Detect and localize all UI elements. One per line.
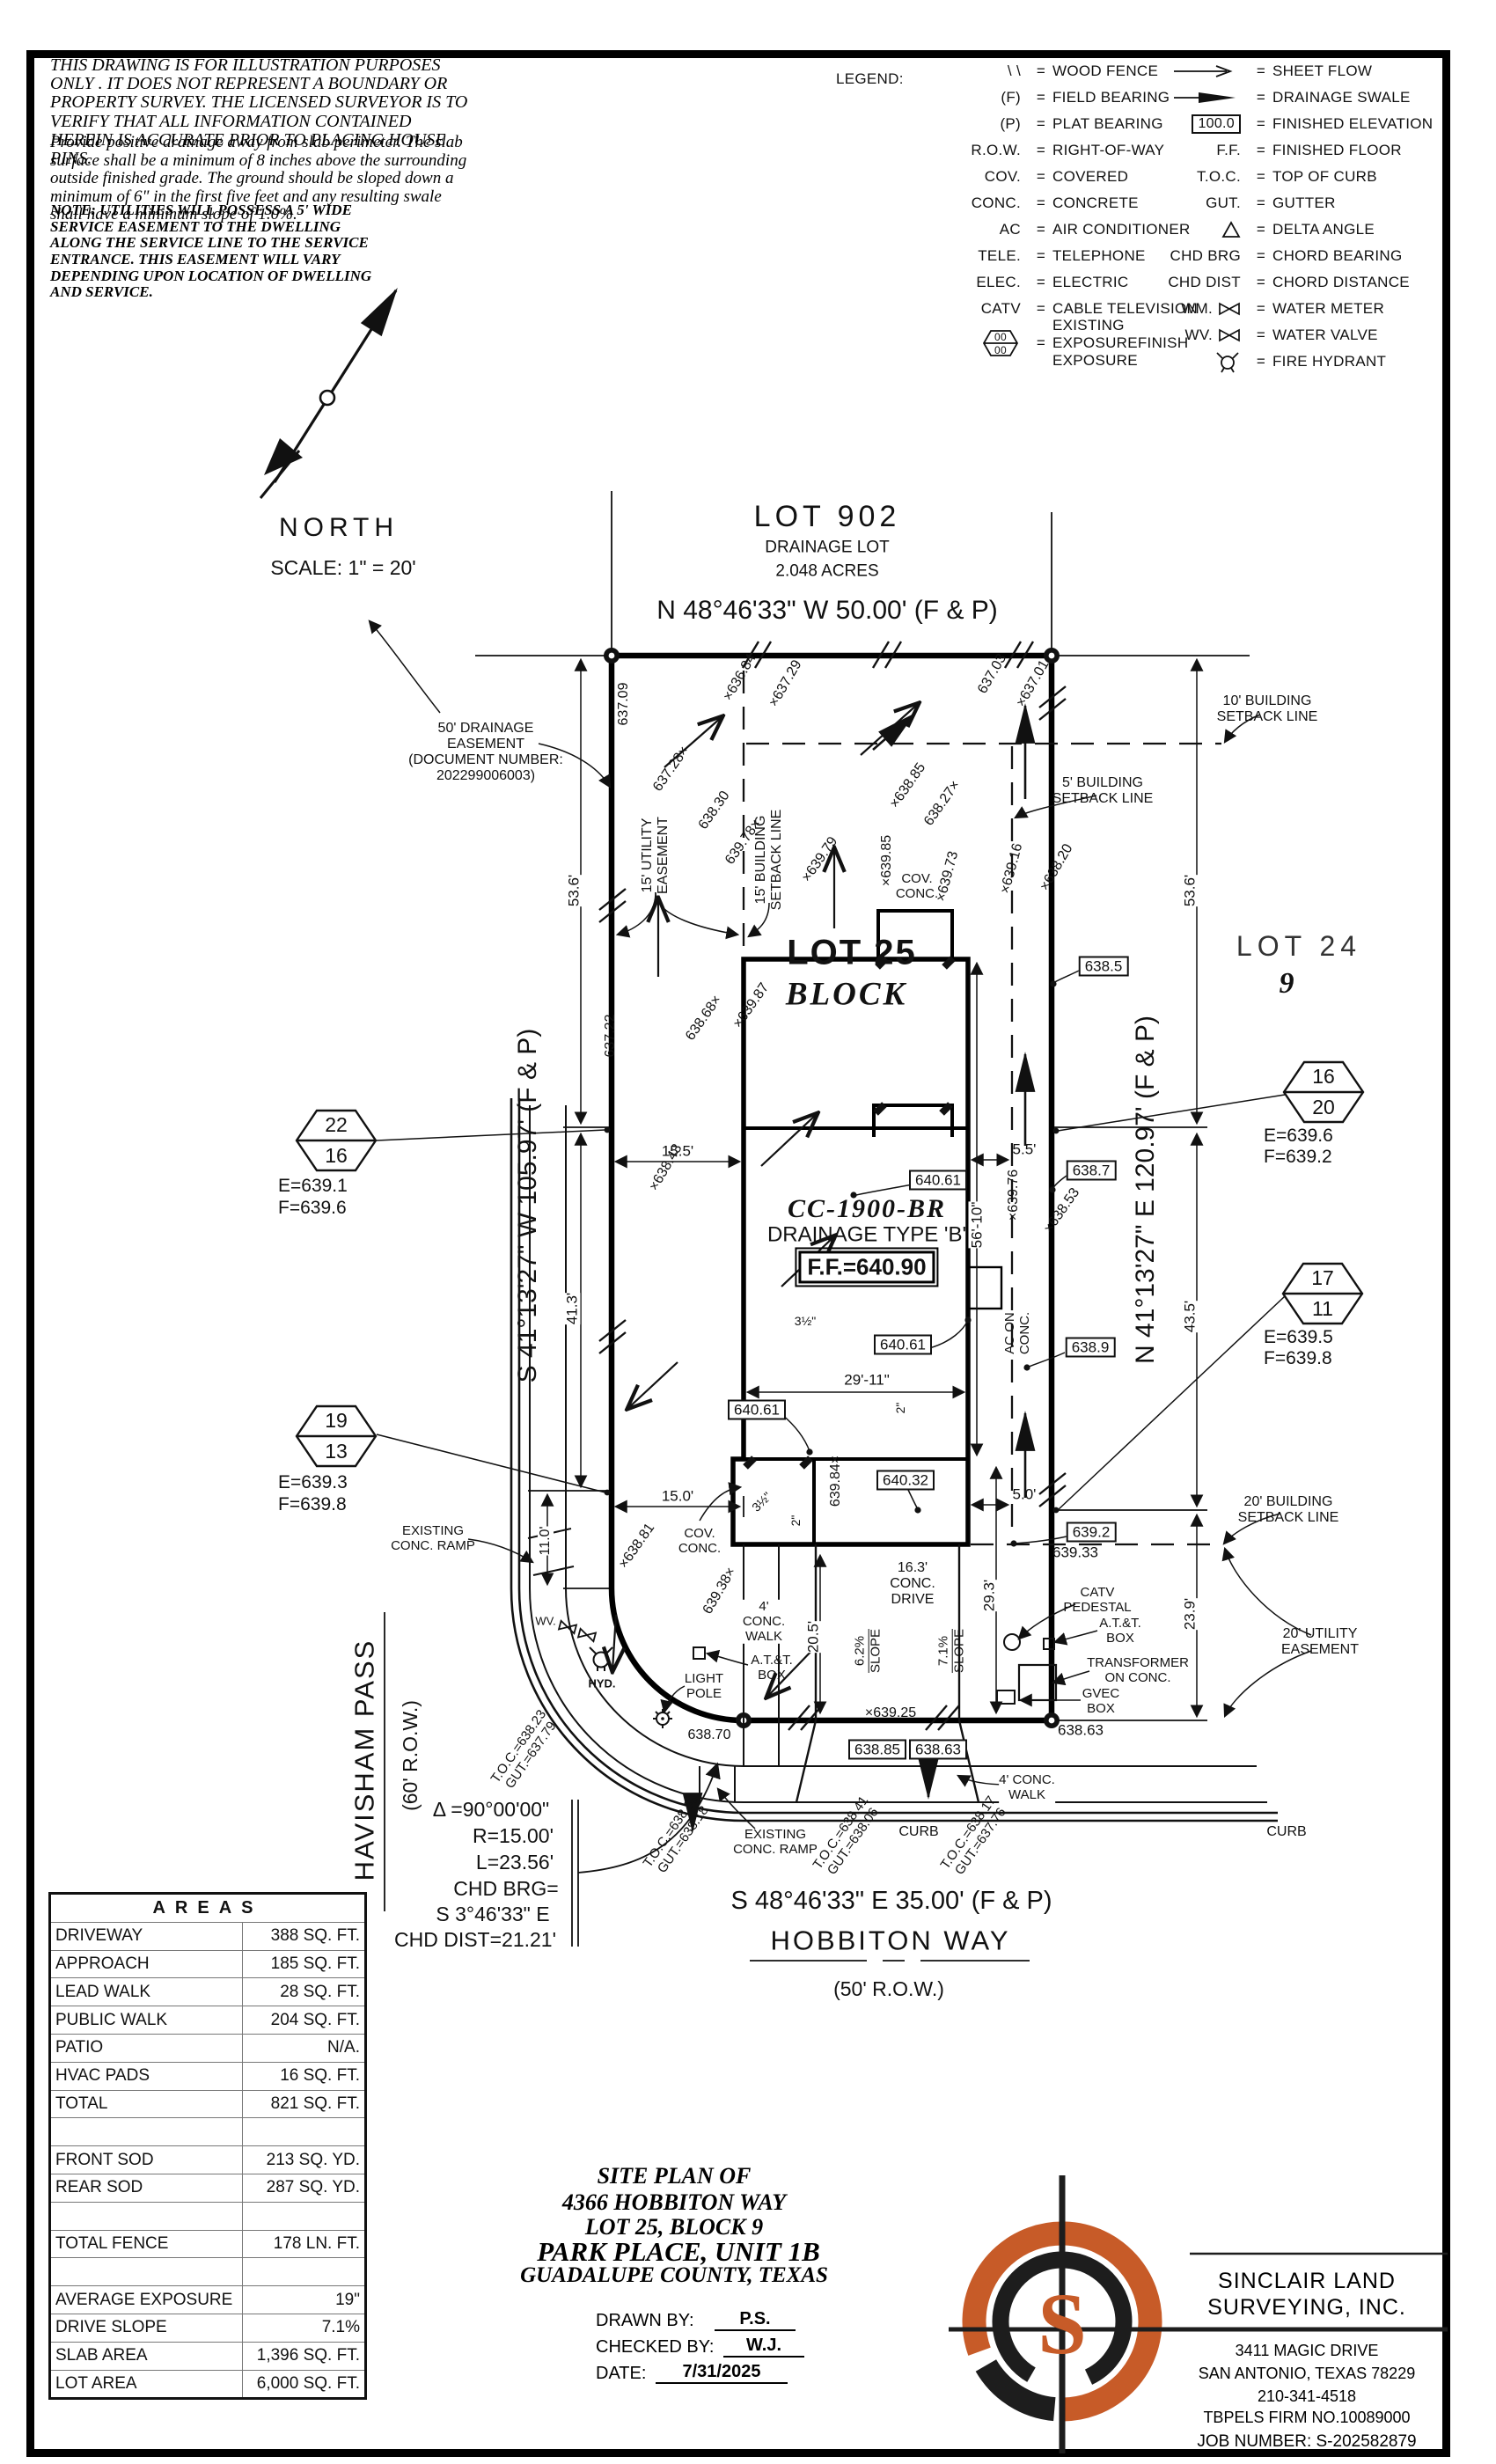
walkr-line1: 4' CONC. [999,1773,1055,1788]
water-valve-icon [559,1621,576,1633]
ue20-line2: EASEMENT [1281,1642,1359,1658]
hex4-existing: E=639.5 [1264,1327,1333,1348]
row-value [243,2202,366,2230]
ue15-line2: EASEMENT [656,817,671,894]
hex-bottom-value: 00 [994,344,1007,356]
hex4-top: 17 [1311,1267,1334,1290]
table-row: TOTAL FENCE178 LN. FT. [50,2230,366,2258]
elevation-638-63: 638.63 [1058,1721,1104,1738]
bsl5-line1: 5' BUILDING [1052,775,1154,791]
drainage-swale-arrow-icon [1118,92,1250,104]
catv-line1: CATV [1063,1586,1131,1601]
site-plan-sheet: THIS DRAWING IS FOR ILLUSTRATION PURPOSE… [0,0,1496,2464]
row-label: APPROACH [50,1950,243,1978]
curb-label-1: CURB [898,1824,938,1840]
row-value: 178 LN. FT. [243,2230,366,2258]
table-row [50,2202,366,2230]
company-firm-number: TBPELS FIRM NO.10089000 [1170,2409,1443,2427]
havisham-pass-street: HAVISHAM PASS [350,1639,381,1881]
legend-label: GUTTER [1272,194,1461,212]
hex3-top: 16 [1312,1066,1335,1089]
legend-row: T.O.C.=TOP OF CURB [1118,164,1461,190]
dim-53-6-east: 53.6' [1181,875,1198,906]
elevation-640-61-b: 640.61 [874,1334,932,1354]
table-row: DRIVE SLOPE7.1% [50,2314,366,2342]
xfmr-line2: ON CONC. [1087,1671,1189,1686]
light-pole-label: LIGHTPOLE [685,1672,723,1702]
equals: = [1030,115,1052,133]
checked-by-label: CHECKED BY: [596,2337,714,2358]
table-row: LEAD WALK28 SQ. FT. [50,1978,366,2006]
table-row: SLAB AREA1,396 SQ. FT. [50,2342,366,2370]
company-address2: SAN ANTONIO, TEXAS 78229 [1170,2365,1443,2383]
hex4-finish: F=639.8 [1264,1348,1332,1369]
lot24-block-number: 9 [1280,967,1294,1001]
elevation-638-85: 638.85 [848,1739,906,1759]
hobbiton-way-street: HOBBITON WAY [770,1926,1010,1957]
table-row [50,2258,366,2286]
legend-symbol: TELE. [898,247,1030,265]
hex3-finish: F=639.2 [1264,1147,1332,1168]
elevation-640-61-c: 640.61 [728,1399,786,1419]
table-row: HVAC PADS16 SQ. FT. [50,2062,366,2090]
finished-floor-elevation: F.F.=640.90 [798,1250,935,1283]
legend-symbol: COV. [898,168,1030,186]
hobbiton-row: (50' R.O.W.) [833,1978,944,2001]
dim-23-9: 23.9' [1181,1598,1198,1630]
building-setback-10-label: 10' BUILDINGSETBACK LINE [1217,693,1318,725]
light-pole-icon [653,1709,672,1728]
row-value: 7.1% [243,2314,366,2342]
covr-line2: CONC. [896,887,938,902]
dim-43-5: 43.5' [1181,1301,1198,1332]
equals: = [1250,89,1272,106]
table-row: TOTAL821 SQ. FT. [50,2090,366,2118]
existing-ramp-south-label: EXISTINGCONC. RAMP [733,1828,818,1858]
property-corner-markers [604,648,1060,1728]
equals: = [1250,353,1272,370]
lot24-label: LOT 24 [1236,931,1361,963]
bsl10-line2: SETBACK LINE [1217,709,1318,725]
slope2-word: SLOPE [953,1629,968,1673]
legend-row: =SHEET FLOW [1118,58,1461,84]
legend-label: TOP OF CURB [1272,168,1461,186]
table-row: LOT AREA6,000 SQ. FT. [50,2370,366,2399]
table-row: PUBLIC WALK204 SQ. FT. [50,2006,366,2035]
drainage-easement-label: 50' DRAINAGEEASEMENT(DOCUMENT NUMBER:202… [408,721,563,784]
block-label: BLOCK [786,976,907,1012]
scale-label: SCALE: 1" = 20' [270,557,415,580]
wood-fence-icon: \ \ [898,62,1030,80]
legend-symbol: R.O.W. [898,142,1030,159]
lot902-drainage-lot: DRAINAGE LOT [765,538,889,556]
row-value: 388 SQ. FT. [243,1922,366,1950]
legend-label: CHORD BEARING [1272,247,1461,265]
equals: = [1250,168,1272,186]
row-label: DRIVEWAY [50,1922,243,1950]
bearing-east: N 41°13'27" E 120.97' (F & P) [1131,1016,1161,1364]
ramp1-line1: EXISTING [391,1524,475,1539]
row-value [243,2258,366,2286]
legend-symbol: CATV [898,300,1030,318]
equals: = [1030,247,1052,265]
legend-symbol: AC [898,221,1030,238]
bearing-south: S 48°46'33" E 35.00' (F & P) [730,1887,1052,1915]
covr-line1: COV. [896,872,938,887]
dim-53-6-west: 53.6' [565,875,582,906]
logo-letter: S [1038,2275,1087,2373]
equals: = [1030,89,1052,106]
ac-on-conc-label: AC ONCONC. [1003,1312,1033,1354]
catv-pedestal-icon [1004,1634,1020,1650]
dim-20-5: 20.5' [804,1621,821,1653]
curve-length: L=23.56' [476,1852,554,1874]
dim-5-0: 5.0' [1013,1485,1037,1502]
legend-symbol: T.O.C. [1118,168,1250,186]
bearing-north: N 48°46'33" W 50.00' (F & P) [656,596,998,626]
elevation-638-63-box: 638.63 [909,1739,967,1759]
table-row: DRIVEWAY388 SQ. FT. [50,1922,366,1950]
legend-label: SHEET FLOW [1272,62,1461,80]
elevation-640-32: 640.32 [876,1470,935,1490]
elevation-638-7: 638.7 [1067,1160,1117,1180]
light-pole-elevation: 638.70 [688,1727,731,1743]
existing-ramp-west-label: EXISTINGCONC. RAMP [391,1524,475,1554]
row-label: PATIO [50,2034,243,2062]
row-value: 204 SQ. FT. [243,2006,366,2035]
dim-29-3: 29.3' [980,1580,997,1611]
row-label: LEAD WALK [50,1978,243,2006]
ac-line1: AC ON [1003,1312,1018,1354]
delta-triangle-icon [1118,221,1250,238]
transformer-label: TRANSFORMERON CONC. [1087,1656,1189,1686]
equals: = [1250,194,1272,212]
legend-label: DELTA ANGLE [1272,221,1461,238]
company-address1: 3411 MAGIC DRIVE [1170,2342,1443,2360]
bsl15-line2: SETBACK LINE [769,810,785,911]
spot-637-22: 637.22 [603,1015,619,1058]
date-value: 7/31/2025 [656,2362,788,2384]
hex2-bottom: 13 [325,1441,348,1463]
gvec-line2: BOX [1082,1702,1120,1717]
hex1-top: 22 [325,1114,348,1137]
covered-conc-rear-label: COV.CONC. [896,872,938,902]
de-line1: 50' DRAINAGE [408,721,563,737]
property-boundary [612,656,1052,1720]
gvec-line1: GVEC [1082,1687,1120,1702]
north-arrow [260,290,396,498]
legend-label: CHORD DISTANCE [1272,274,1461,291]
areas-title: AREAS [50,1894,366,1923]
curve-delta: Δ =90°00'00" [433,1799,549,1822]
legend-symbol: CHD DIST [1118,274,1250,291]
legend-row: WM.=WATER METER [1118,296,1461,322]
equals: = [1250,326,1272,344]
table-row [50,2118,366,2146]
titleblock-site-plan-of: SITE PLAN OF [498,2163,850,2189]
att-box-east-label: A.T.&T.BOX [1099,1617,1141,1646]
legend-row: =DELTA ANGLE [1118,216,1461,243]
table-row: PATION/A. [50,2034,366,2062]
north-label: NORTH [279,513,399,543]
row-label: REAR SOD [50,2174,243,2202]
drive-line2: CONC. [890,1576,935,1592]
row-value: 185 SQ. FT. [243,1950,366,1978]
building-setback-5-label: 5' BUILDINGSETBACK LINE [1052,775,1154,807]
water-valve-icon [578,1629,596,1641]
equals: = [1250,115,1272,133]
lot25-label: LOT 25 [787,934,917,973]
lot902-acreage: 2.048 ACRES [775,561,878,580]
slope1-word: SLOPE [869,1629,884,1673]
drawn-by-label: DRAWN BY: [596,2311,694,2331]
dim-15-0: 15.0' [662,1487,693,1504]
equals: = [1030,194,1052,212]
row-label [50,2118,243,2146]
house-model: CC-1900-BR [788,1194,946,1224]
titleblock-county: GUADALUPE COUNTY, TEXAS [498,2263,850,2288]
checked-by-value: W.J. [723,2336,804,2358]
legend-symbol: GUT. [1118,194,1250,212]
attl-line2: BOX [751,1668,793,1683]
covf-line1: COV. [678,1527,721,1542]
drive-line1: 16.3' [890,1560,935,1576]
row-label: SLAB AREA [50,2342,243,2370]
company-phone: 210-341-4518 [1170,2387,1443,2406]
table-row: APPROACH185 SQ. FT. [50,1950,366,1978]
bearing-west: S 41°13'27" W 105.97' (F & P) [513,1029,543,1383]
curve-chord-distance: CHD DIST=21.21' [394,1929,556,1952]
company-name-line2: SURVEYING, INC. [1170,2295,1443,2321]
bsl20-line1: 20' BUILDING [1238,1494,1339,1510]
equals: = [1030,142,1052,159]
spot-639-85: ×639.85 [879,835,895,886]
equals: = [1250,300,1272,318]
row-value: 287 SQ. YD. [243,2174,366,2202]
dim-11-0: 11.0' [538,1526,554,1555]
table-row: AVERAGE EXPOSURE19" [50,2286,366,2314]
att-box-icon [693,1647,705,1659]
dim-29-11: 29'-11" [844,1371,890,1388]
fire-hydrant-icon [1118,349,1250,374]
legend-row: GUT.=GUTTER [1118,190,1461,216]
catv-pedestal-label: CATVPEDESTAL [1063,1586,1131,1616]
covered-conc-front-label: COV.CONC. [678,1527,721,1557]
row-label: LOT AREA [50,2370,243,2399]
curb-label-2: CURB [1266,1824,1306,1840]
legend-symbol: ELEC. [898,274,1030,291]
row-value: 6,000 SQ. FT. [243,2370,366,2399]
conc-walk-south-label: 4' CONC.WALK [999,1773,1055,1803]
elevation-638-9: 638.9 [1066,1337,1116,1357]
hex4-bottom: 11 [1312,1298,1333,1321]
conc-drive-label: 16.3'CONC.DRIVE [890,1560,935,1608]
company-name-line1: SINCLAIR LAND [1170,2269,1443,2294]
sheet-flow-arrow-icon [1118,65,1250,77]
legend-symbol: CONC. [898,194,1030,212]
legend-label: FINISHED ELEVATION [1272,115,1461,133]
equals: = [1030,62,1052,80]
hex2-finish: F=639.8 [278,1494,347,1515]
date-label: DATE: [596,2364,646,2384]
job-number: JOB NUMBER: S-202582879 [1162,2432,1452,2452]
curve-radius: R=15.00' [473,1825,554,1848]
curve-chord-bearing: S 3°46'33" E [436,1903,549,1926]
row-value: 821 SQ. FT. [243,2090,366,2118]
walkr-line2: WALK [999,1788,1055,1803]
lot902-title: LOT 902 [754,500,901,533]
ramp1-line2: CONC. RAMP [391,1539,475,1554]
hex2-existing: E=639.3 [278,1472,348,1493]
row-label [50,2258,243,2286]
elevation-638-5: 638.5 [1079,956,1129,976]
building-setback-20-label: 20' BUILDINGSETBACK LINE [1238,1494,1339,1526]
row-label: HVAC PADS [50,2062,243,2090]
equals: = [1030,300,1052,318]
row-label: DRIVE SLOPE [50,2314,243,2342]
xfmr-line1: TRANSFORMER [1087,1656,1189,1671]
equals: = [1250,62,1272,80]
curve-chord-bearing-label: CHD BRG= [453,1878,559,1901]
hex3-existing: E=639.6 [1264,1126,1333,1147]
dim-2-a: 2" [894,1403,908,1414]
row-label: AVERAGE EXPOSURE [50,2286,243,2314]
attr-line1: A.T.&T. [1099,1617,1141,1632]
elevation-640-61-a: 640.61 [909,1170,967,1190]
row-label: TOTAL [50,2090,243,2118]
hex2-top: 19 [325,1410,348,1433]
row-label: PUBLIC WALK [50,2006,243,2035]
lp-line2: POLE [685,1687,723,1702]
fire-hydrant-icon [590,1647,612,1671]
row-value: 19" [243,2286,366,2314]
utility-easement-15-label: 15' UTILITYEASEMENT [640,817,671,894]
drawn-by-value: P.S. [715,2309,796,2331]
titleblock-address: 4366 HOBBITON WAY [498,2189,850,2216]
ramp2-line2: CONC. RAMP [733,1843,818,1858]
slope1-value: 6.2% [854,1629,869,1673]
row-label [50,2202,243,2230]
drive-slope-2: 7.1%SLOPE [937,1629,968,1673]
attl-line1: A.T.&T. [751,1654,793,1668]
drive-slope-1: 6.2%SLOPE [854,1629,884,1673]
de-line3: (DOCUMENT NUMBER: [408,752,563,768]
slope2-value: 7.1% [937,1629,953,1673]
hex-top-value: 00 [994,331,1007,343]
dim-3half-a: 3½" [795,1315,816,1329]
elevation-639-33: 639.33 [1052,1544,1098,1560]
row-value: N/A. [243,2034,366,2062]
equals: = [1030,168,1052,186]
gvec-box-icon [997,1690,1015,1704]
drive-line3: DRIVE [890,1592,935,1608]
utility-note-paragraph: NOTE: UTILITIES WILL POSSESS A 5' WIDE S… [50,202,374,301]
table-row: FRONT SOD213 SQ. YD. [50,2146,366,2174]
bsl5-line2: SETBACK LINE [1052,791,1154,807]
equals: = [1250,142,1272,159]
row-label: FRONT SOD [50,2146,243,2174]
date: 7/31/2025 [656,2362,788,2384]
legend-row: =FIRE HYDRANT [1118,348,1461,375]
water-meter-symbol: WM. [1118,300,1250,318]
legend-label: DRAINAGE SWALE [1272,89,1461,106]
equals: = [1250,247,1272,265]
walkl-line2: CONC. [743,1615,785,1630]
dim-2-b: 2" [789,1515,803,1527]
ue15-line1: 15' UTILITY [640,817,656,894]
spot-639-76: ×639.76 [1006,1170,1022,1221]
legend-row: CHD DIST=CHORD DISTANCE [1118,269,1461,296]
areas-table: AREAS DRIVEWAY388 SQ. FT. APPROACH185 SQ… [48,1892,367,2400]
legend-symbol: F.F. [1118,142,1250,159]
catv-line2: PEDESTAL [1063,1601,1131,1616]
equals: = [1030,274,1052,291]
row-value: 1,396 SQ. FT. [243,2342,366,2370]
legend-row: CHD BRG=CHORD BEARING [1118,243,1461,269]
table-row: REAR SOD287 SQ. YD. [50,2174,366,2202]
equals: = [1030,221,1052,238]
legend-label: WATER VALVE [1272,326,1461,344]
dim-5-5: 5.5' [1013,1140,1037,1157]
de-line2: EASEMENT [408,737,563,752]
gvec-box-label: GVECBOX [1082,1687,1120,1717]
legend-symbol: 100.0 [1192,114,1241,134]
legend-symbol: (F) [898,89,1030,106]
bsl20-line2: SETBACK LINE [1238,1510,1339,1526]
hex1-bottom: 16 [325,1145,348,1168]
drawn-by: P.S. [715,2309,796,2331]
dim-41-3: 41.3' [563,1293,580,1324]
elevation-639-25: ×639.25 [865,1705,916,1721]
water-valve-label: WV. [535,1616,555,1629]
spot-639-84: 639.84× [828,1456,844,1507]
att-box-west-label: A.T.&T.BOX [751,1654,793,1683]
legend-label: FIRE HYDRANT [1272,353,1461,370]
walkl-line3: WALK [743,1629,785,1644]
lp-line1: LIGHT [685,1672,723,1687]
row-label: TOTAL FENCE [50,2230,243,2258]
water-valve-symbol: WV. [1118,326,1250,344]
equals: = [1250,221,1272,238]
row-value: 213 SQ. YD. [243,2146,366,2174]
legend-symbol: (P) [898,115,1030,133]
finished-elevation-box: 100.0 [1118,114,1250,134]
hex3-bottom: 20 [1312,1096,1335,1119]
ac-line2: CONC. [1018,1312,1033,1354]
row-value: 28 SQ. FT. [243,1978,366,2006]
legend-label: FINISHED FLOOR [1272,142,1461,159]
checked-by: W.J. [723,2336,804,2358]
legend-row: WV.=WATER VALVE [1118,322,1461,348]
dim-56-10: 56'-10" [968,1202,985,1249]
hex1-finish: F=639.6 [278,1198,347,1219]
ue20-line1: 20' UTILITY [1281,1626,1359,1642]
conc-walk-west-label: 4'CONC.WALK [743,1600,785,1644]
spot-637-09: 637.09 [616,683,632,726]
legend-row: F.F.=FINISHED FLOOR [1118,137,1461,164]
legend-symbol: WV. [1185,326,1213,344]
de-line4: 202299006003) [408,768,563,784]
equals: = [1030,334,1052,352]
havisham-row: (60' R.O.W.) [400,1700,422,1811]
bsl10-line1: 10' BUILDING [1217,693,1318,709]
attr-line2: BOX [1099,1632,1141,1646]
legend-label: WATER METER [1272,300,1461,318]
legend-symbol: CHD BRG [1118,247,1250,265]
hydrant-label: HYD. [588,1678,615,1691]
legend-symbol: WM. [1181,300,1213,318]
legend-row: 100.0=FINISHED ELEVATION [1118,111,1461,137]
